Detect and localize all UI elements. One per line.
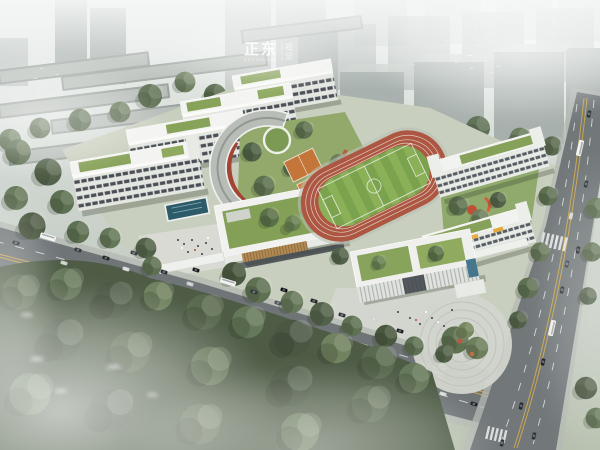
rendering-canvas: 正东 EST VISION 视 觉 xyxy=(0,0,600,450)
round-pavilion xyxy=(264,127,290,153)
watermark-brand-sub: EST VISION xyxy=(244,58,275,62)
watermark-stamp-top: 视 xyxy=(285,42,293,52)
watermark: 正东 EST VISION 视 觉 xyxy=(244,40,293,62)
watermark-brand: 正东 xyxy=(244,40,278,58)
campus-aerial-rendering: 正东 EST VISION 视 觉 xyxy=(0,0,600,450)
watermark-stamp-bottom: 觉 xyxy=(285,51,293,61)
